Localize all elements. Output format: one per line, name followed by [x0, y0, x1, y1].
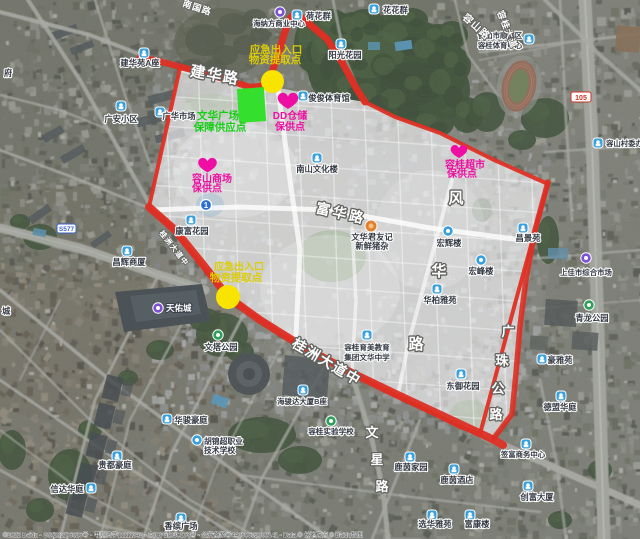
- svg-text:昌景苑: 昌景苑: [516, 233, 542, 243]
- svg-text:华柏雅苑: 华柏雅苑: [423, 295, 457, 305]
- svg-text:广华市场: 广华市场: [162, 111, 195, 121]
- svg-text:东御花园: 东御花园: [446, 381, 479, 391]
- svg-text:风: 风: [448, 190, 463, 207]
- svg-text:选华雅苑: 选华雅苑: [418, 519, 452, 529]
- svg-text:荷花群: 荷花群: [305, 11, 332, 21]
- svg-text:宏辉楼: 宏辉楼: [437, 238, 463, 248]
- svg-text:府: 府: [4, 68, 13, 78]
- svg-text:鹿茵家园: 鹿茵家园: [394, 462, 427, 472]
- svg-text:华骏豪庭: 华骏豪庭: [174, 415, 208, 425]
- svg-text:俊俊体育馆: 俊俊体育馆: [308, 93, 350, 103]
- svg-text:富康楼: 富康楼: [465, 519, 491, 529]
- svg-text:广: 广: [501, 324, 514, 339]
- svg-text:广安小区: 广安小区: [104, 114, 138, 124]
- svg-text:路: 路: [408, 335, 424, 353]
- svg-text:文: 文: [365, 425, 379, 440]
- svg-text:容山村委办公: 容山村委办公: [605, 139, 640, 148]
- svg-text:青龙公园: 青龙公园: [575, 313, 608, 323]
- svg-text:阳光花园: 阳光花园: [328, 50, 361, 60]
- svg-text:文塔公园: 文塔公园: [204, 342, 237, 352]
- svg-text:新鲜猪杂: 新鲜猪杂: [355, 241, 389, 251]
- svg-text:签富商务中心: 签富商务中心: [500, 450, 546, 459]
- svg-text:南山文化楼: 南山文化楼: [296, 164, 338, 174]
- svg-text:公: 公: [491, 381, 504, 396]
- svg-text:天佑城: 天佑城: [166, 303, 192, 313]
- svg-text:康富花园: 康富花园: [175, 226, 208, 236]
- svg-text:海骏达大厦B座: 海骏达大厦B座: [277, 397, 327, 406]
- svg-text:集团文华中学: 集团文华中学: [343, 352, 390, 362]
- svg-text:S577: S577: [59, 226, 75, 233]
- svg-text:创富大厦: 创富大厦: [519, 492, 554, 502]
- svg-text:华: 华: [431, 262, 446, 280]
- svg-text:建华苑A座: 建华苑A座: [119, 58, 160, 68]
- svg-text:花花群: 花花群: [383, 5, 409, 15]
- svg-text:德盟华庭: 德盟华庭: [542, 402, 577, 412]
- svg-text:胡锦超职业: 胡锦超职业: [204, 436, 243, 446]
- svg-text:城: 城: [2, 306, 11, 316]
- svg-text:105: 105: [575, 95, 587, 102]
- svg-text:香缤广场: 香缤广场: [163, 521, 197, 531]
- svg-text:上佳市综合市场: 上佳市综合市场: [560, 268, 612, 277]
- svg-text:珠: 珠: [495, 353, 509, 368]
- svg-text:鹿茵酒店: 鹿茵酒店: [440, 475, 474, 485]
- svg-text:容桂育美教育: 容桂育美教育: [343, 342, 390, 352]
- svg-text:宏峰楼: 宏峰楼: [469, 266, 495, 276]
- svg-text:信达华庭: 信达华庭: [50, 484, 84, 494]
- svg-text:1: 1: [204, 201, 209, 210]
- svg-text:贵都豪庭: 贵都豪庭: [98, 460, 132, 470]
- svg-text:昌辉商厦: 昌辉商厦: [112, 257, 146, 267]
- svg-text:容桂实验学校: 容桂实验学校: [307, 426, 354, 436]
- svg-text:技术学校: 技术学校: [204, 445, 235, 455]
- svg-text:路: 路: [489, 407, 503, 422]
- svg-text:豪雅苑: 豪雅苑: [548, 355, 574, 365]
